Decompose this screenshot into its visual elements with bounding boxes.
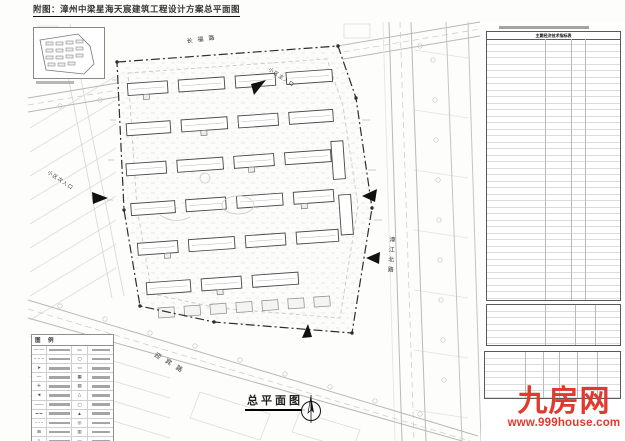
legend-symbol: ▥ xyxy=(72,428,88,436)
legend-label-bar xyxy=(47,401,72,409)
legend-symbol: —— xyxy=(32,401,47,409)
key-map-caption-bar xyxy=(36,81,74,84)
key-map-inset xyxy=(33,27,105,79)
legend-label-bar xyxy=(47,373,72,381)
info-panel: 主要经济技术指标表 xyxy=(481,22,625,441)
legend-row: ✛ ▨ xyxy=(32,382,113,391)
legend-symbol: ✛ xyxy=(32,382,47,390)
table-divider xyxy=(545,305,546,345)
legend-row: —— ▢ xyxy=(32,401,113,410)
table-divider xyxy=(575,305,576,345)
legend-row: — ▦ xyxy=(32,373,113,382)
legend-symbol: ▨ xyxy=(72,382,88,390)
legend-label-bar xyxy=(88,346,113,354)
legend-label-bar xyxy=(47,428,72,436)
legend-symbol: ⋯⋯ xyxy=(32,419,47,427)
watermark-logo: 九房网 xyxy=(505,387,623,417)
table-divider xyxy=(545,39,546,300)
plan-caption: 总平面图 xyxy=(245,392,305,411)
legend-symbol: ▢ xyxy=(72,355,88,363)
legend-symbol: ▭ xyxy=(72,346,88,354)
legend-label-bar xyxy=(47,410,72,418)
legend-title: 图 例 xyxy=(32,335,113,346)
legend-symbol: ▢ xyxy=(72,401,88,409)
legend-symbol: ━ ━ xyxy=(32,410,47,418)
economic-indicator-table: 主要经济技术指标表 xyxy=(486,31,621,301)
legend-row: ━ ━ ▲ xyxy=(32,410,113,419)
legend-label-bar xyxy=(47,346,72,354)
legend-label-bar xyxy=(47,355,72,363)
table-divider xyxy=(571,39,572,300)
legend-label-bar xyxy=(47,437,72,441)
legend-label-bar xyxy=(88,437,113,441)
legend-symbol: ⊞ xyxy=(32,428,47,436)
legend-row: – – – ▢ xyxy=(32,355,113,364)
legend-label-bar xyxy=(88,364,113,372)
legend-label-bar xyxy=(88,382,113,390)
key-map-drawing xyxy=(34,28,104,78)
legend-symbol: ➤ xyxy=(32,364,47,372)
legend-row: —·— ▭ xyxy=(32,346,113,355)
legend-label-bar xyxy=(88,391,113,399)
legend-label-bar xyxy=(88,373,113,381)
legend-symbol: ▦ xyxy=(72,373,88,381)
legend-symbol: ◎ xyxy=(72,419,88,427)
north-arrow-icon xyxy=(298,393,324,425)
legend-symbol: △ xyxy=(72,391,88,399)
legend-symbol: ▭ xyxy=(72,437,88,441)
legend-row: ≡ ▭ xyxy=(32,437,113,441)
legend-label-bar xyxy=(88,410,113,418)
legend-symbol: ▭ xyxy=(72,364,88,372)
legend-symbol: —·— xyxy=(32,346,47,354)
legend-symbol: — xyxy=(32,373,47,381)
drawing-sheet: 附图：漳州中梁星海天宸建筑工程设计方案总平面图 长福路 漳江北路 迎宾路 小区主… xyxy=(0,0,625,441)
parking-indicator-table xyxy=(486,304,621,346)
legend-row: ➤ ▭ xyxy=(32,364,113,373)
legend-row: ⋯⋯ ◎ xyxy=(32,419,113,428)
legend-label-bar xyxy=(88,428,113,436)
legend-label-bar xyxy=(47,391,72,399)
watermark-url: www.999house.com xyxy=(505,417,623,429)
legend-label-bar xyxy=(47,364,72,372)
legend-label-bar xyxy=(88,419,113,427)
legend-symbol: ≡ xyxy=(32,437,47,441)
legend-row: ⊞ ▥ xyxy=(32,428,113,437)
panel-header-note-bar xyxy=(499,26,589,29)
legend-row: ◄ △ xyxy=(32,391,113,400)
legend-rows: —·— ▭ – – – ▢ ➤ ▭ xyxy=(32,346,113,441)
legend-label-bar xyxy=(88,401,113,409)
page-title: 附图：漳州中梁星海天宸建筑工程设计方案总平面图 xyxy=(33,3,240,17)
legend-panel: 图 例 —·— ▭ – – – ▢ ➤ xyxy=(31,334,114,441)
legend-symbol: ▲ xyxy=(72,410,88,418)
table-divider xyxy=(585,39,586,300)
legend-symbol: ◄ xyxy=(32,391,47,399)
legend-label-bar xyxy=(47,382,72,390)
legend-label-bar xyxy=(47,419,72,427)
table-divider xyxy=(595,305,596,345)
legend-label-bar xyxy=(88,355,113,363)
watermark: 九房网 www.999house.com xyxy=(505,387,623,429)
indicator-table-title: 主要经济技术指标表 xyxy=(487,32,620,40)
legend-symbol: – – – xyxy=(32,355,47,363)
